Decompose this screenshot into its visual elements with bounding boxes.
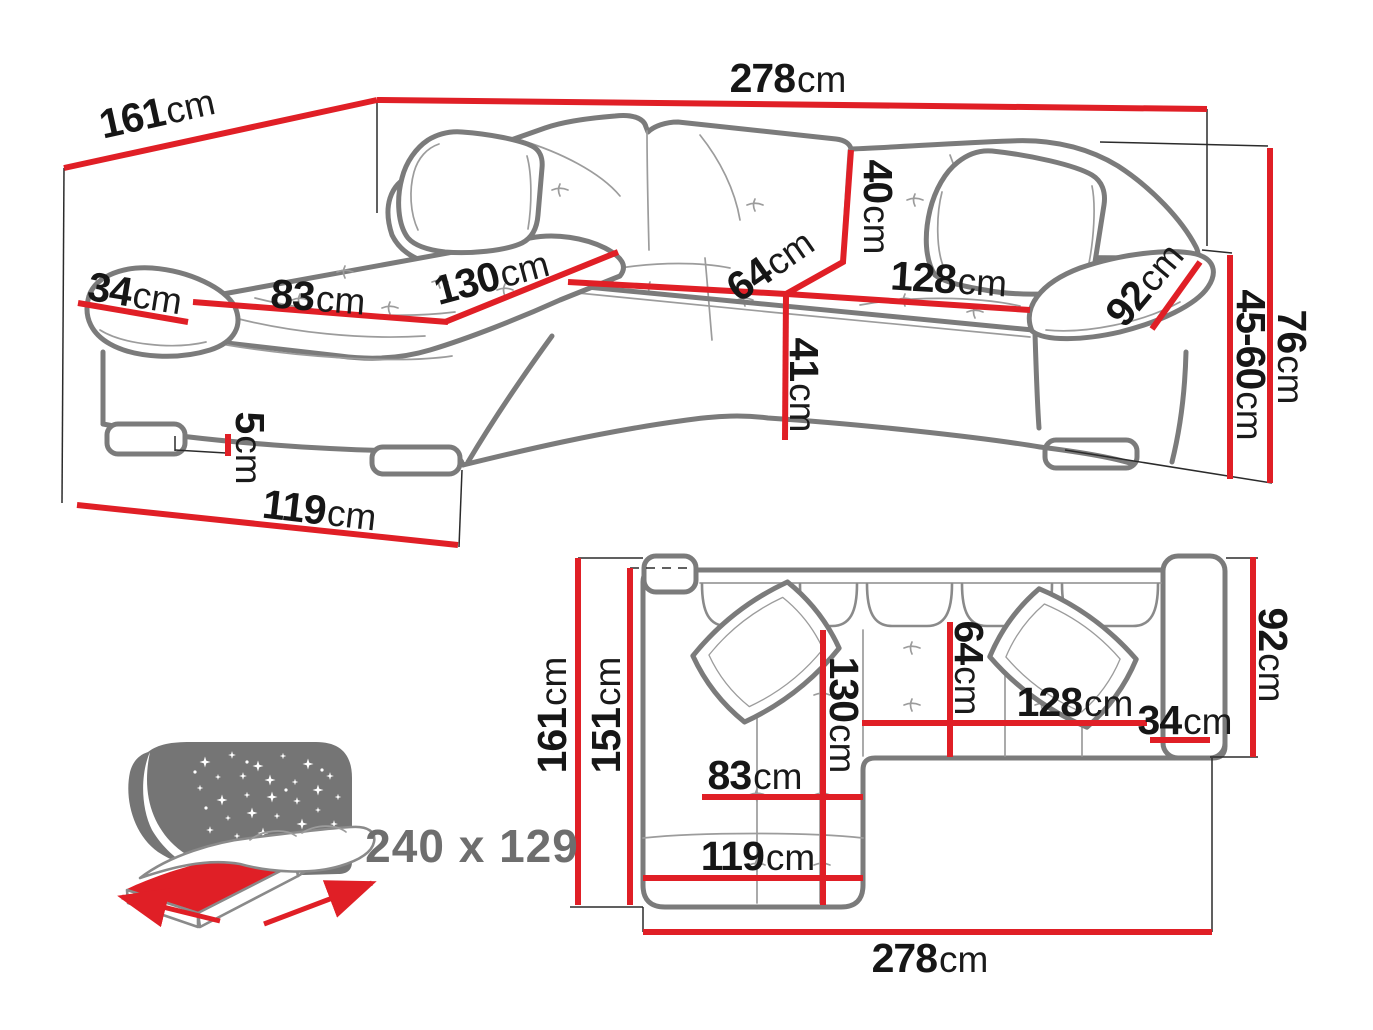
plan-label-128: 128cm <box>1017 679 1134 725</box>
dim-label-278: 278cm <box>730 55 847 101</box>
plan-label-34: 34cm <box>1138 697 1233 743</box>
dim-label-40: 40cm <box>855 160 901 255</box>
dim-label-41: 41cm <box>781 338 827 433</box>
pillow-left <box>399 132 543 253</box>
plan-label-151: 151cm <box>583 657 629 774</box>
sofa-leg <box>372 447 460 474</box>
plan-label-92: 92cm <box>1250 608 1296 703</box>
dim-line-278 <box>377 100 1207 109</box>
plan-label-130: 130cm <box>821 657 867 774</box>
sleeping-function-icon: 240 x 129 <box>122 742 579 927</box>
plan-label-278: 278cm <box>872 935 989 981</box>
plan-armrest-left <box>644 556 696 592</box>
plan-view: 161cm 151cm 130cm 64cm 128cm 34cm 92cm 8… <box>529 556 1296 981</box>
plan-label-119: 119cm <box>701 833 815 879</box>
arrow-length <box>264 883 372 924</box>
sofa-leg <box>107 424 185 454</box>
dim-label-119: 119cm <box>260 481 379 540</box>
dim-label-5: 5cm <box>227 411 273 484</box>
dim-label-76: 76cm <box>1269 310 1315 405</box>
sleeping-size-label: 240 x 129 <box>365 820 579 872</box>
plan-label-83: 83cm <box>708 752 803 798</box>
sofa-dimension-diagram: 161cm 278cm 40cm 64cm 128cm 41cm 92cm 76… <box>0 0 1373 1030</box>
dim-label-45-60: 45-60cm <box>1228 289 1274 440</box>
plan-label-161: 161cm <box>529 657 575 774</box>
plan-label-64: 64cm <box>946 621 992 716</box>
perspective-view: 161cm 278cm 40cm 64cm 128cm 41cm 92cm 76… <box>62 55 1315 547</box>
